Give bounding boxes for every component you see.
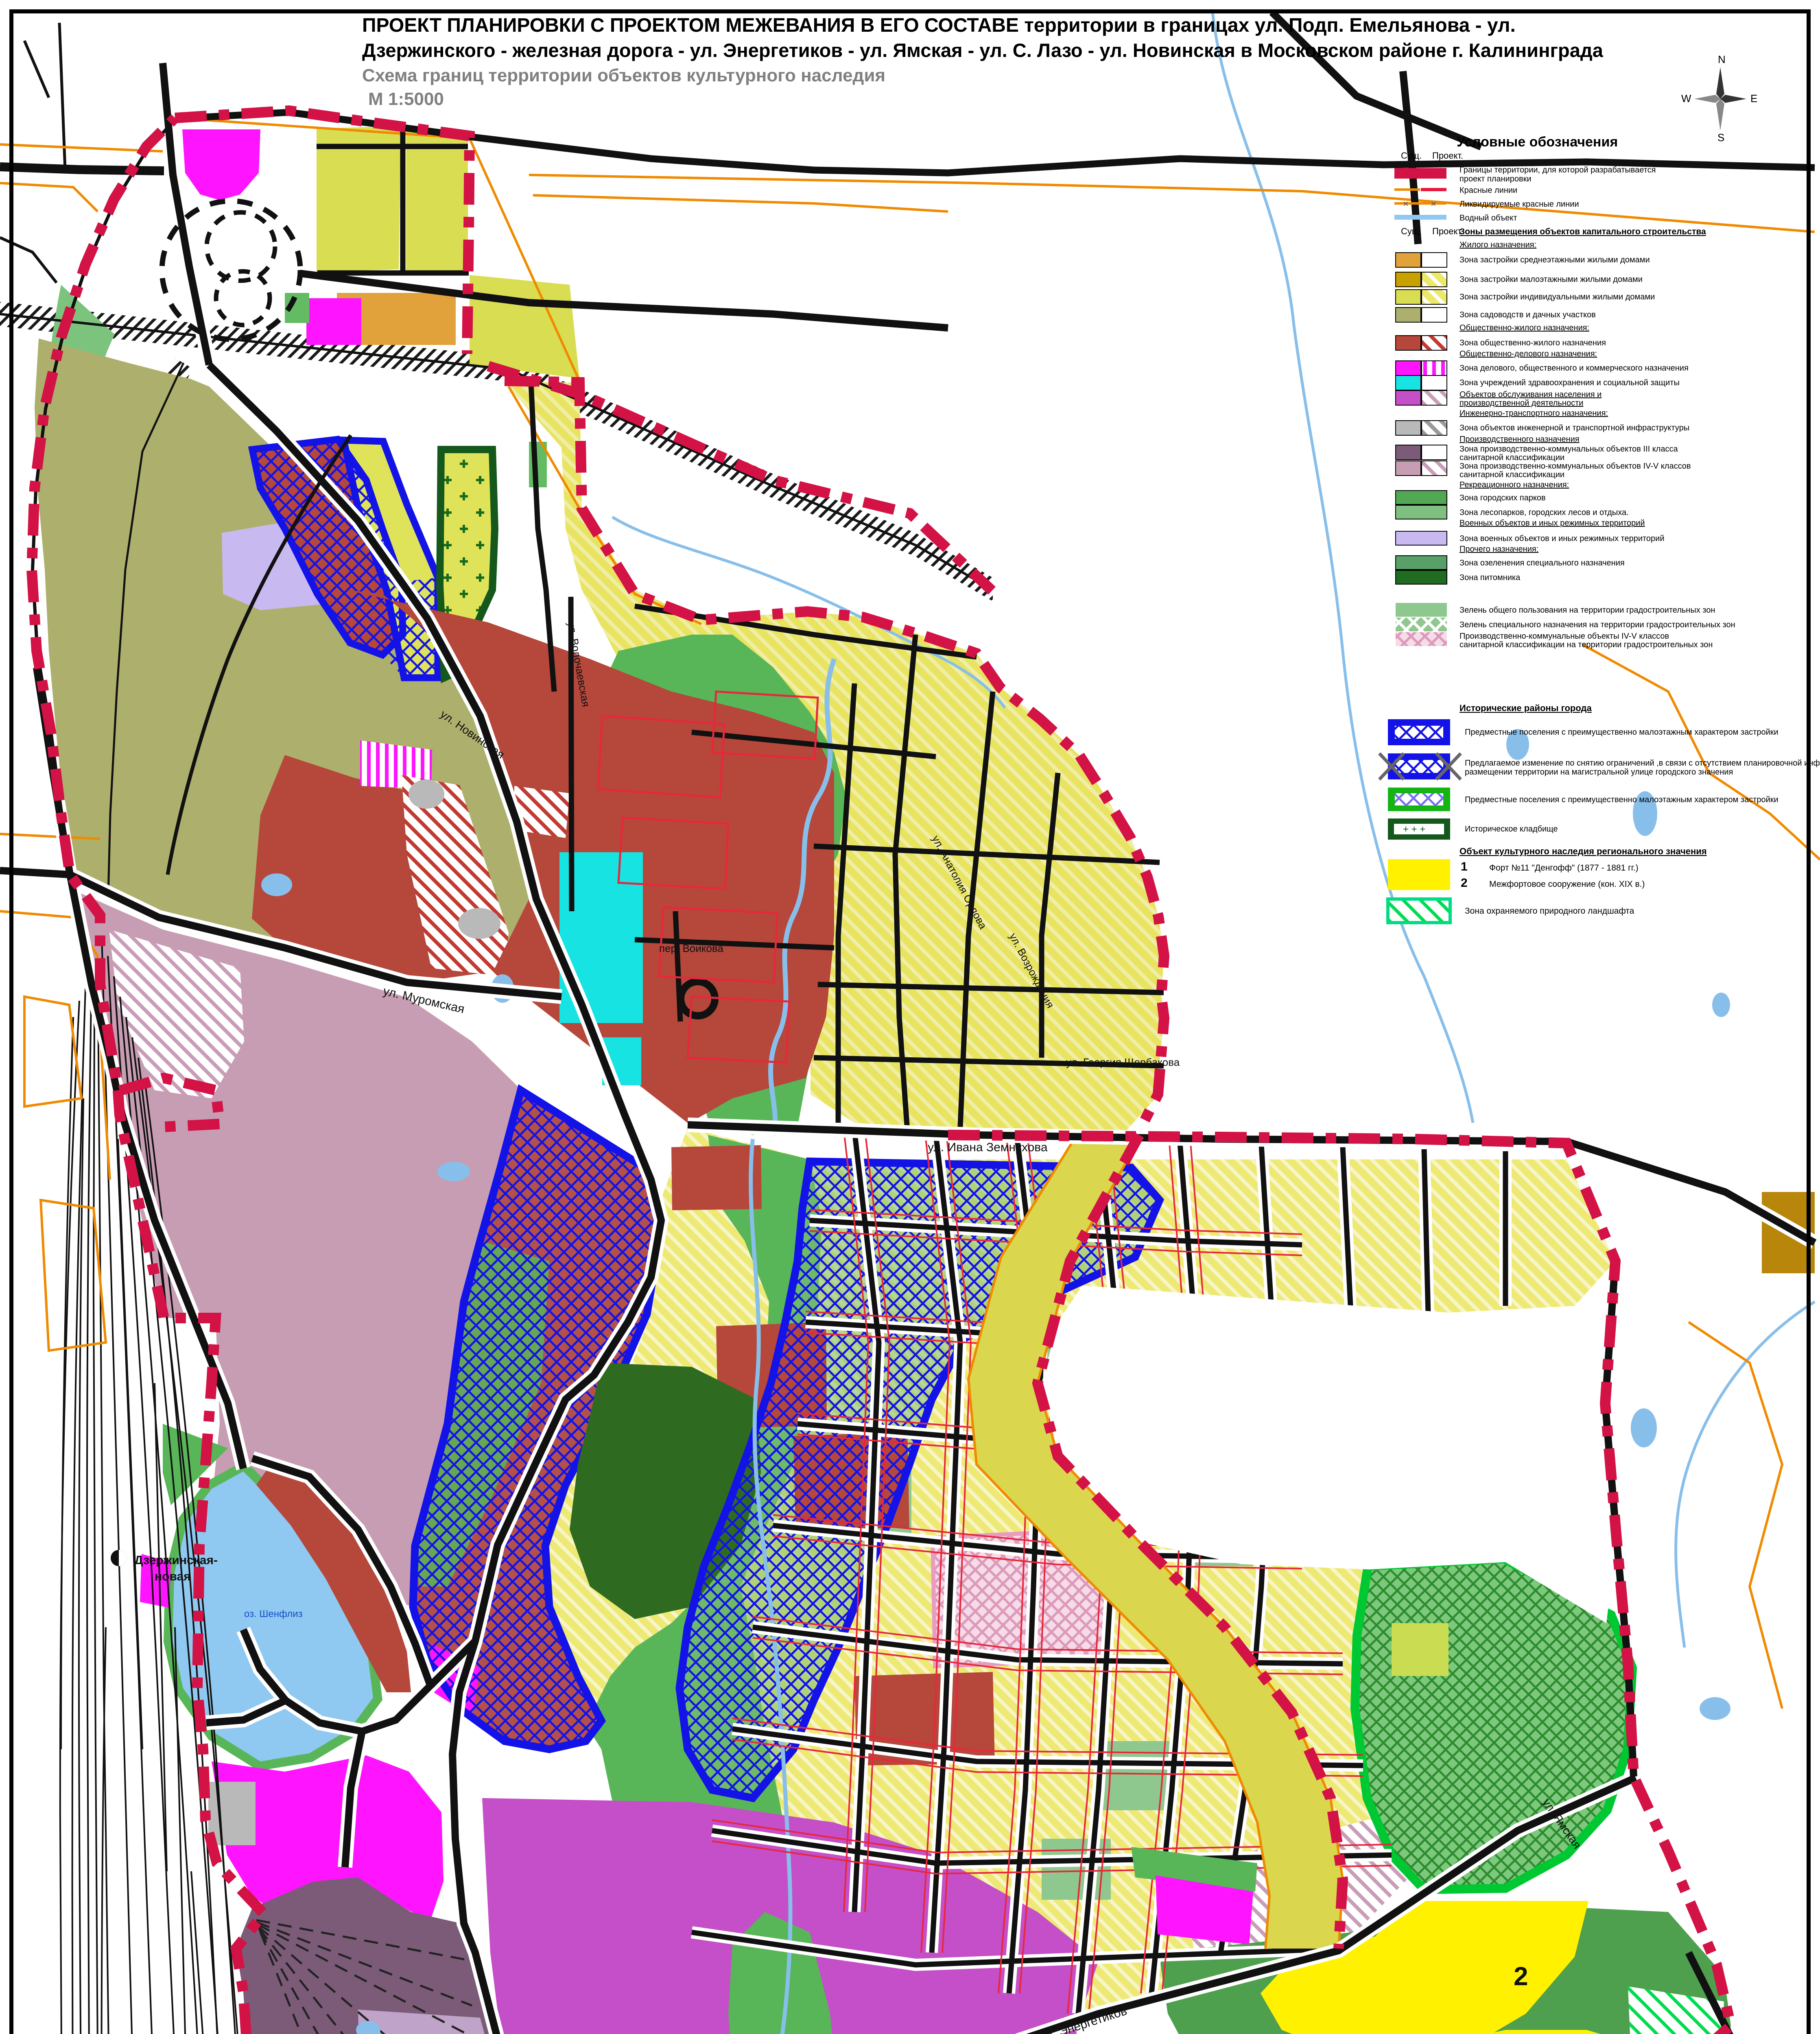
svg-text:ул. Ивана Земнухова: ул. Ивана Земнухова (928, 1141, 1048, 1154)
svg-text:Прочего назначения:: Прочего назначения: (1459, 545, 1538, 554)
svg-text:размещении территории на магис: размещении территории на магистральной у… (1465, 768, 1733, 777)
svg-text:Проект.: Проект. (1432, 151, 1463, 161)
svg-text:Сущ.: Сущ. (1401, 151, 1422, 161)
svg-text:Историческое кладбище: Историческое кладбище (1465, 825, 1558, 834)
svg-text:новая: новая (155, 1570, 191, 1583)
svg-text:Зона производственно-коммуналь: Зона производственно-коммунальных объект… (1459, 445, 1678, 454)
svg-text:санитарной классификации на те: санитарной классификации на территории г… (1459, 640, 1713, 649)
svg-text:Зона объектов инженерной и тра: Зона объектов инженерной и транспортной … (1459, 423, 1689, 432)
svg-text:санитарной классификации: санитарной классификации (1459, 453, 1564, 462)
svg-text:Зона городских парков: Зона городских парков (1459, 493, 1546, 502)
svg-text:Производственно-коммунальные о: Производственно-коммунальные объекты IV-… (1459, 632, 1669, 641)
svg-text:Зона застройки индивидуальными: Зона застройки индивидуальными жилыми до… (1459, 292, 1655, 301)
svg-text:Производственного назначения: Производственного назначения (1459, 435, 1580, 444)
svg-text:Предместные поселения с преиму: Предместные поселения с преимущественно … (1465, 795, 1778, 804)
svg-text:Зона военных объектов и иных р: Зона военных объектов и иных режимных те… (1459, 534, 1665, 543)
svg-text:2: 2 (1461, 876, 1468, 890)
svg-text:оз. Шенфлиз: оз. Шенфлиз (244, 1608, 303, 1619)
svg-text:Зона охраняемого природного ла: Зона охраняемого природного ландшафта (1465, 906, 1634, 916)
svg-text:Зона озеленения специального н: Зона озеленения специального назначения (1459, 559, 1625, 567)
svg-text:Объектов обслуживания населени: Объектов обслуживания населения и (1459, 390, 1602, 399)
svg-text:санитарной классификации: санитарной классификации (1459, 470, 1564, 479)
svg-text:×: × (1431, 199, 1436, 210)
svg-text:Военных объектов и иных режимн: Военных объектов и иных режимных террито… (1459, 519, 1645, 528)
svg-text:Зона производственно-коммуналь: Зона производственно-коммунальных объект… (1459, 462, 1691, 471)
svg-text:ул. Георгия Щербакова: ул. Георгия Щербакова (1066, 1056, 1180, 1068)
svg-text:E: E (1750, 92, 1757, 105)
svg-text:N: N (1718, 53, 1726, 65)
svg-text:Инженерно-транспортного назнач: Инженерно-транспортного назначения: (1459, 409, 1608, 418)
svg-text:Рекреационного назначения:: Рекреационного назначения: (1459, 480, 1569, 489)
svg-text:Общественно-делового назначени: Общественно-делового назначения: (1459, 349, 1597, 358)
svg-text:Зона питомника: Зона питомника (1459, 573, 1521, 582)
svg-text:проект планировки: проект планировки (1459, 175, 1532, 183)
svg-text:Границы территории, для которо: Границы территории, для которой разрабат… (1459, 166, 1656, 175)
svg-text:Условные обозначения: Условные обозначения (1457, 134, 1618, 150)
svg-text:Зона застройки малоэтажными жи: Зона застройки малоэтажными жилыми домам… (1459, 275, 1643, 284)
svg-text:Межфортовое сооружение (кон. X: Межфортовое сооружение (кон. XIX в.) (1489, 880, 1645, 889)
svg-text:2: 2 (1514, 1962, 1528, 1991)
svg-text:производственной деятельности: производственной деятельности (1459, 399, 1583, 408)
svg-text:Красные линии: Красные линии (1459, 186, 1517, 195)
svg-text:+ + +: + + + (1403, 824, 1425, 835)
svg-text:Зелень общего пользования на т: Зелень общего пользования на территории … (1459, 606, 1715, 615)
svg-text:Дзержинского - железная дорога: Дзержинского - железная дорога - ул. Эне… (362, 39, 1604, 61)
svg-text:1: 1 (1461, 860, 1468, 873)
svg-text:Зона садоводств и дачных участ: Зона садоводств и дачных участков (1459, 310, 1596, 319)
svg-text:Сущ.: Сущ. (1401, 226, 1422, 236)
svg-text:Зелень специального назначения: Зелень специального назначения на террит… (1459, 620, 1735, 629)
svg-text:Водный объект: Водный объект (1459, 214, 1517, 223)
svg-text:Жилого назначения:: Жилого назначения: (1459, 240, 1536, 249)
svg-text:Зона общественно-жилого назнач: Зона общественно-жилого назначения (1459, 338, 1606, 347)
svg-text:Зона лесопарков, городских лес: Зона лесопарков, городских лесов и отдых… (1459, 508, 1629, 517)
svg-text:ПРОЕКТ ПЛАНИРОВКИ С ПРОЕКТОМ: ПРОЕКТ ПЛАНИРОВКИ С ПРОЕКТОМ МЕЖЕВАНИЯ В… (362, 15, 1516, 36)
svg-text:×: × (1403, 199, 1409, 210)
svg-text:Зона делового, общественного и: Зона делового, общественного и коммерчес… (1459, 364, 1689, 373)
svg-text:М 1:5000: М 1:5000 (368, 89, 444, 109)
svg-text:Дзержинская-: Дзержинская- (134, 1554, 218, 1567)
svg-text:Схема границ территории объект: Схема границ территории объектов культур… (362, 65, 885, 85)
svg-text:Проект.: Проект. (1432, 226, 1463, 236)
svg-text:Объект культурного наследия ре: Объект культурного наследия региональног… (1459, 846, 1707, 856)
svg-text:Зона учреждений здравоохранени: Зона учреждений здравоохранения и социал… (1459, 378, 1680, 387)
svg-text:W: W (1681, 92, 1691, 105)
svg-text:пер. Воикова: пер. Воикова (659, 942, 723, 954)
svg-text:Зоны размещения объектов капит: Зоны размещения объектов капитального ст… (1459, 227, 1706, 236)
svg-text:Форт №11 "Денгофф" (1877 - 188: Форт №11 "Денгофф" (1877 - 1881 гг.) (1489, 863, 1639, 873)
svg-text:S: S (1717, 131, 1724, 144)
svg-text:Общественно-жилого назначения:: Общественно-жилого назначения: (1459, 323, 1589, 332)
svg-text:Исторические районы города: Исторические районы города (1459, 703, 1592, 713)
svg-text:Предлагаемое изменение по снят: Предлагаемое изменение по снятию огранич… (1465, 759, 1820, 768)
svg-text:Ликвидируемые красные линии: Ликвидируемые красные линии (1459, 200, 1579, 209)
svg-text:Предместные поселения с преиму: Предместные поселения с преимущественно … (1465, 728, 1778, 737)
svg-text:Зона застройки среднеэтажными: Зона застройки среднеэтажными жилыми дом… (1459, 255, 1650, 264)
